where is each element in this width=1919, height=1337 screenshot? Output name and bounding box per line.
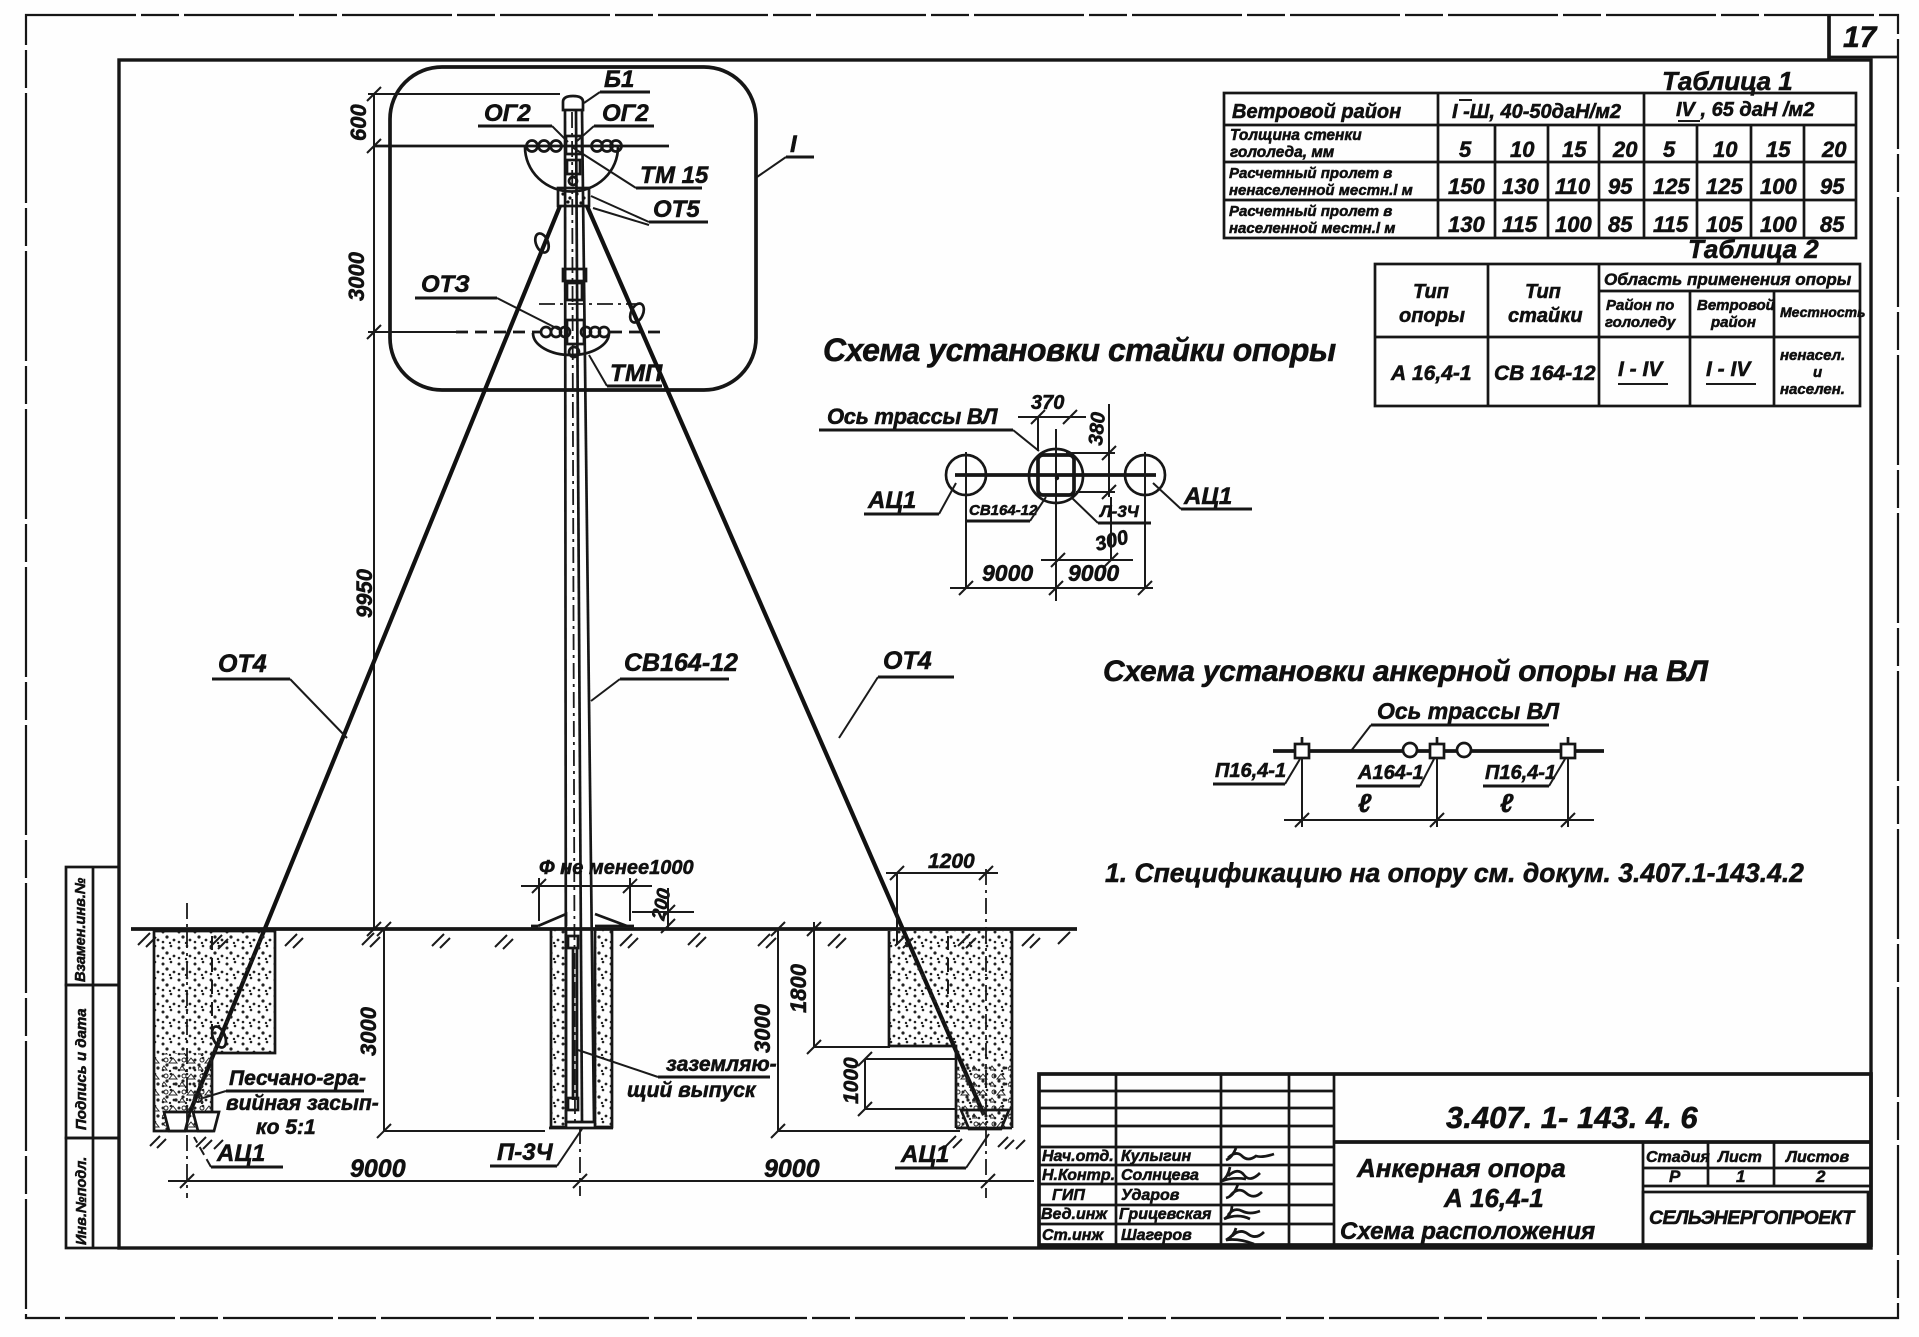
- svg-text:9000: 9000: [350, 1155, 406, 1183]
- svg-text:Листов: Листов: [1785, 1149, 1849, 1166]
- svg-text:Взамен.инв.№: Взамен.инв.№: [73, 877, 89, 982]
- svg-text:Ось трассы ВЛ: Ось трассы ВЛ: [1377, 698, 1560, 724]
- svg-text:Кулыгин: Кулыгин: [1121, 1148, 1191, 1165]
- svg-text:Область применения опоры: Область применения опоры: [1604, 270, 1852, 289]
- svg-text:ОТ5: ОТ5: [653, 196, 700, 223]
- svg-text:Шагеров: Шагеров: [1121, 1227, 1192, 1244]
- svg-text:ОГ2: ОГ2: [484, 100, 531, 127]
- svg-text:IV , 65 даН /м2: IV , 65 даН /м2: [1676, 99, 1814, 121]
- svg-text:370: 370: [1031, 392, 1064, 414]
- svg-text:I - IV: I - IV: [1706, 358, 1752, 381]
- svg-text:ТМ 15: ТМ 15: [640, 162, 709, 189]
- svg-text:Анкерная опора: Анкерная опора: [1356, 1153, 1566, 1183]
- svg-text:щий выпуск: щий выпуск: [627, 1079, 757, 1102]
- svg-text:П16,4-1: П16,4-1: [1485, 762, 1556, 784]
- svg-text:1200: 1200: [928, 850, 975, 873]
- svg-text:Б1: Б1: [604, 66, 634, 93]
- svg-text:110: 110: [1555, 174, 1591, 199]
- svg-text:ℓ: ℓ: [1500, 788, 1514, 818]
- svg-text:Ветровой: Ветровой: [1697, 297, 1775, 314]
- svg-text:Р: Р: [1669, 1167, 1681, 1186]
- svg-text:Инв.№подл.: Инв.№подл.: [74, 1157, 90, 1245]
- svg-text:ко 5:1: ко 5:1: [256, 1116, 316, 1139]
- svg-text:100: 100: [1760, 174, 1797, 199]
- svg-text:гололеда, мм: гололеда, мм: [1230, 144, 1335, 161]
- svg-text:П-3Ч: П-3Ч: [497, 1139, 554, 1166]
- svg-text:Схема расположения: Схема расположения: [1340, 1218, 1595, 1245]
- svg-text:А164-1: А164-1: [1357, 762, 1424, 784]
- svg-text:3.407. 1- 143. 4. 6: 3.407. 1- 143. 4. 6: [1446, 1100, 1698, 1135]
- svg-text:150: 150: [1448, 174, 1485, 199]
- svg-text:А 16,4-1: А 16,4-1: [1443, 1183, 1544, 1213]
- svg-text:20: 20: [1612, 137, 1638, 162]
- svg-text:3000: 3000: [344, 251, 369, 301]
- svg-text:Тип: Тип: [1413, 281, 1449, 303]
- svg-text:Песчано-гра-: Песчано-гра-: [229, 1067, 366, 1090]
- svg-text:85: 85: [1608, 212, 1633, 237]
- svg-text:85: 85: [1820, 212, 1845, 237]
- svg-text:район: район: [1710, 314, 1756, 331]
- svg-text:600: 600: [346, 104, 371, 141]
- svg-text:1000: 1000: [840, 1057, 863, 1104]
- svg-text:и: и: [1813, 364, 1822, 381]
- svg-text:380: 380: [1085, 411, 1110, 446]
- svg-text:АЦ1: АЦ1: [900, 1141, 949, 1168]
- svg-text:Грицевская: Грицевская: [1119, 1206, 1212, 1223]
- svg-text:Подпись и дата: Подпись и дата: [73, 1008, 90, 1130]
- svg-text:АЦ1: АЦ1: [867, 487, 916, 514]
- svg-text:9950: 9950: [352, 568, 377, 618]
- svg-text:Солнцева: Солнцева: [1121, 1167, 1199, 1184]
- svg-text:115: 115: [1653, 212, 1689, 237]
- svg-text:АЦ1: АЦ1: [216, 1140, 265, 1167]
- svg-text:15: 15: [1562, 137, 1587, 162]
- svg-text:125: 125: [1706, 174, 1743, 199]
- svg-text:15: 15: [1766, 137, 1791, 162]
- svg-text:115: 115: [1502, 212, 1538, 237]
- svg-text:Н.Контр.: Н.Контр.: [1042, 1167, 1115, 1184]
- svg-text:10: 10: [1510, 137, 1535, 162]
- svg-text:95: 95: [1820, 174, 1845, 199]
- svg-text:Расчетный пролет в: Расчетный пролет в: [1229, 165, 1392, 182]
- svg-text:Стадия: Стадия: [1646, 1149, 1710, 1166]
- svg-text:2: 2: [1815, 1167, 1826, 1186]
- svg-text:Нач.отд.: Нач.отд.: [1042, 1148, 1114, 1165]
- svg-text:Ось трассы ВЛ: Ось трассы ВЛ: [827, 404, 998, 429]
- svg-text:ненасел.: ненасел.: [1780, 347, 1845, 364]
- svg-text:Толщина стенки: Толщина стенки: [1230, 127, 1362, 144]
- svg-text:95: 95: [1608, 174, 1633, 199]
- svg-text:125: 125: [1653, 174, 1690, 199]
- svg-text:Район по: Район по: [1606, 297, 1674, 314]
- svg-text:100: 100: [1555, 212, 1592, 237]
- svg-text:17: 17: [1843, 21, 1878, 54]
- svg-text:вийная засып-: вийная засып-: [226, 1092, 379, 1115]
- svg-text:ℓ: ℓ: [1358, 788, 1372, 818]
- svg-text:10: 10: [1713, 137, 1738, 162]
- svg-text:I - IV: I - IV: [1618, 358, 1664, 381]
- svg-text:Вед.инж: Вед.инж: [1041, 1206, 1108, 1223]
- svg-text:Схема установки стайки опоры: Схема установки стайки опоры: [823, 332, 1336, 368]
- svg-text:П16,4-1: П16,4-1: [1215, 760, 1286, 782]
- svg-text:3000: 3000: [750, 1003, 775, 1053]
- svg-text:130: 130: [1448, 212, 1485, 237]
- svg-text:Таблица 2: Таблица 2: [1688, 234, 1819, 264]
- svg-text:ОТЗ: ОТЗ: [421, 271, 470, 298]
- svg-text:заземляю-: заземляю-: [666, 1053, 777, 1076]
- svg-text:5: 5: [1663, 137, 1676, 162]
- svg-text:9000: 9000: [1068, 560, 1119, 586]
- svg-text:Тип: Тип: [1525, 281, 1561, 303]
- svg-text:населен.: населен.: [1780, 381, 1845, 398]
- svg-text:ОТ4: ОТ4: [883, 647, 932, 675]
- svg-text:опоры: опоры: [1399, 305, 1465, 327]
- svg-text:А 16,4-1: А 16,4-1: [1390, 362, 1472, 385]
- svg-text:130: 130: [1502, 174, 1539, 199]
- svg-text:Ударов: Ударов: [1121, 1187, 1180, 1204]
- svg-text:гололеду: гололеду: [1605, 314, 1676, 331]
- svg-text:1: 1: [1736, 1167, 1745, 1186]
- svg-text:СЕЛЬЭНЕРГОПРОЕКТ: СЕЛЬЭНЕРГОПРОЕКТ: [1649, 1207, 1856, 1229]
- svg-text:ОГ2: ОГ2: [602, 100, 649, 127]
- svg-text:Ст.инж: Ст.инж: [1042, 1227, 1104, 1244]
- svg-text:1800: 1800: [786, 963, 811, 1013]
- svg-text:Таблица 1: Таблица 1: [1662, 66, 1793, 96]
- svg-text:Лист: Лист: [1717, 1149, 1762, 1166]
- svg-text:Ветровой район: Ветровой район: [1232, 101, 1401, 123]
- svg-text:СВ164-12: СВ164-12: [624, 649, 738, 677]
- svg-text:населенной местн.l м: населенной местн.l м: [1229, 220, 1395, 237]
- svg-text:3000: 3000: [356, 1006, 381, 1056]
- svg-text:Местность: Местность: [1780, 304, 1865, 320]
- svg-text:ОТ4: ОТ4: [218, 650, 267, 678]
- svg-text:Ф не менее1000: Ф не менее1000: [539, 857, 694, 879]
- svg-text:Л-3Ч: Л-3Ч: [1098, 502, 1140, 521]
- svg-text:ГИП: ГИП: [1052, 1187, 1085, 1204]
- svg-text:АЦ1: АЦ1: [1183, 483, 1232, 510]
- svg-text:ненаселенной местн.l м: ненаселенной местн.l м: [1229, 182, 1413, 199]
- svg-text:20: 20: [1821, 137, 1847, 162]
- svg-text:1. Спецификацию на опору см.: 1. Спецификацию на опору см. докум. 3.40…: [1105, 858, 1804, 888]
- svg-text:Расчетный пролет в: Расчетный пролет в: [1229, 203, 1392, 220]
- svg-text:5: 5: [1459, 137, 1472, 162]
- svg-text:СВ164-12: СВ164-12: [969, 502, 1038, 519]
- svg-text:9000: 9000: [764, 1155, 820, 1183]
- svg-text:Схема установки анкерной опоры: Схема установки анкерной опоры на ВЛ: [1103, 655, 1709, 688]
- svg-text:9000: 9000: [982, 560, 1033, 586]
- svg-text:стайки: стайки: [1508, 305, 1583, 327]
- svg-text:СВ 164-12: СВ 164-12: [1494, 362, 1596, 385]
- svg-text:I -Ш, 40-50даН/м2: I -Ш, 40-50даН/м2: [1452, 101, 1621, 123]
